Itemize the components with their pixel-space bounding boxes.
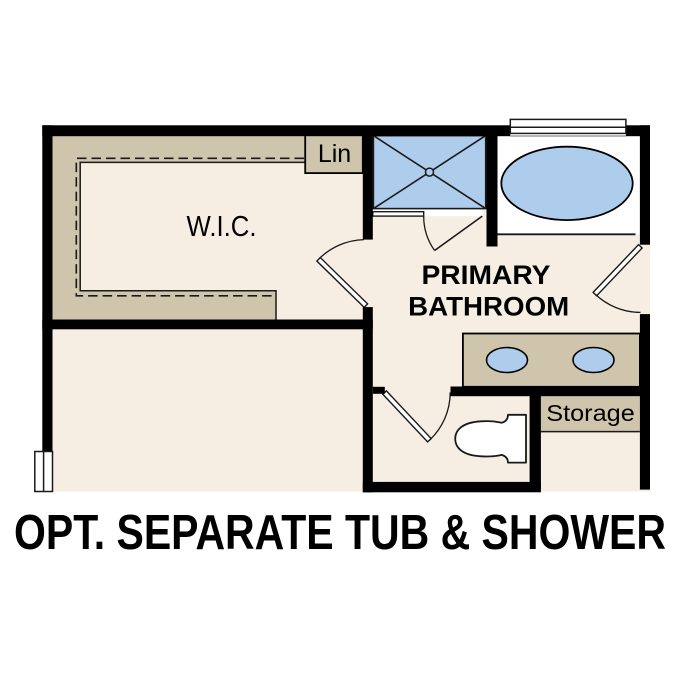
svg-text:Storage: Storage bbox=[546, 400, 635, 426]
svg-text:PRIMARY: PRIMARY bbox=[422, 260, 551, 290]
svg-text:W.I.C.: W.I.C. bbox=[187, 211, 257, 243]
svg-text:BATHROOM: BATHROOM bbox=[408, 292, 569, 322]
svg-text:Lin: Lin bbox=[318, 140, 351, 168]
svg-text:OPT. SEPARATE TUB & SHOWER: OPT. SEPARATE TUB & SHOWER bbox=[14, 505, 666, 560]
